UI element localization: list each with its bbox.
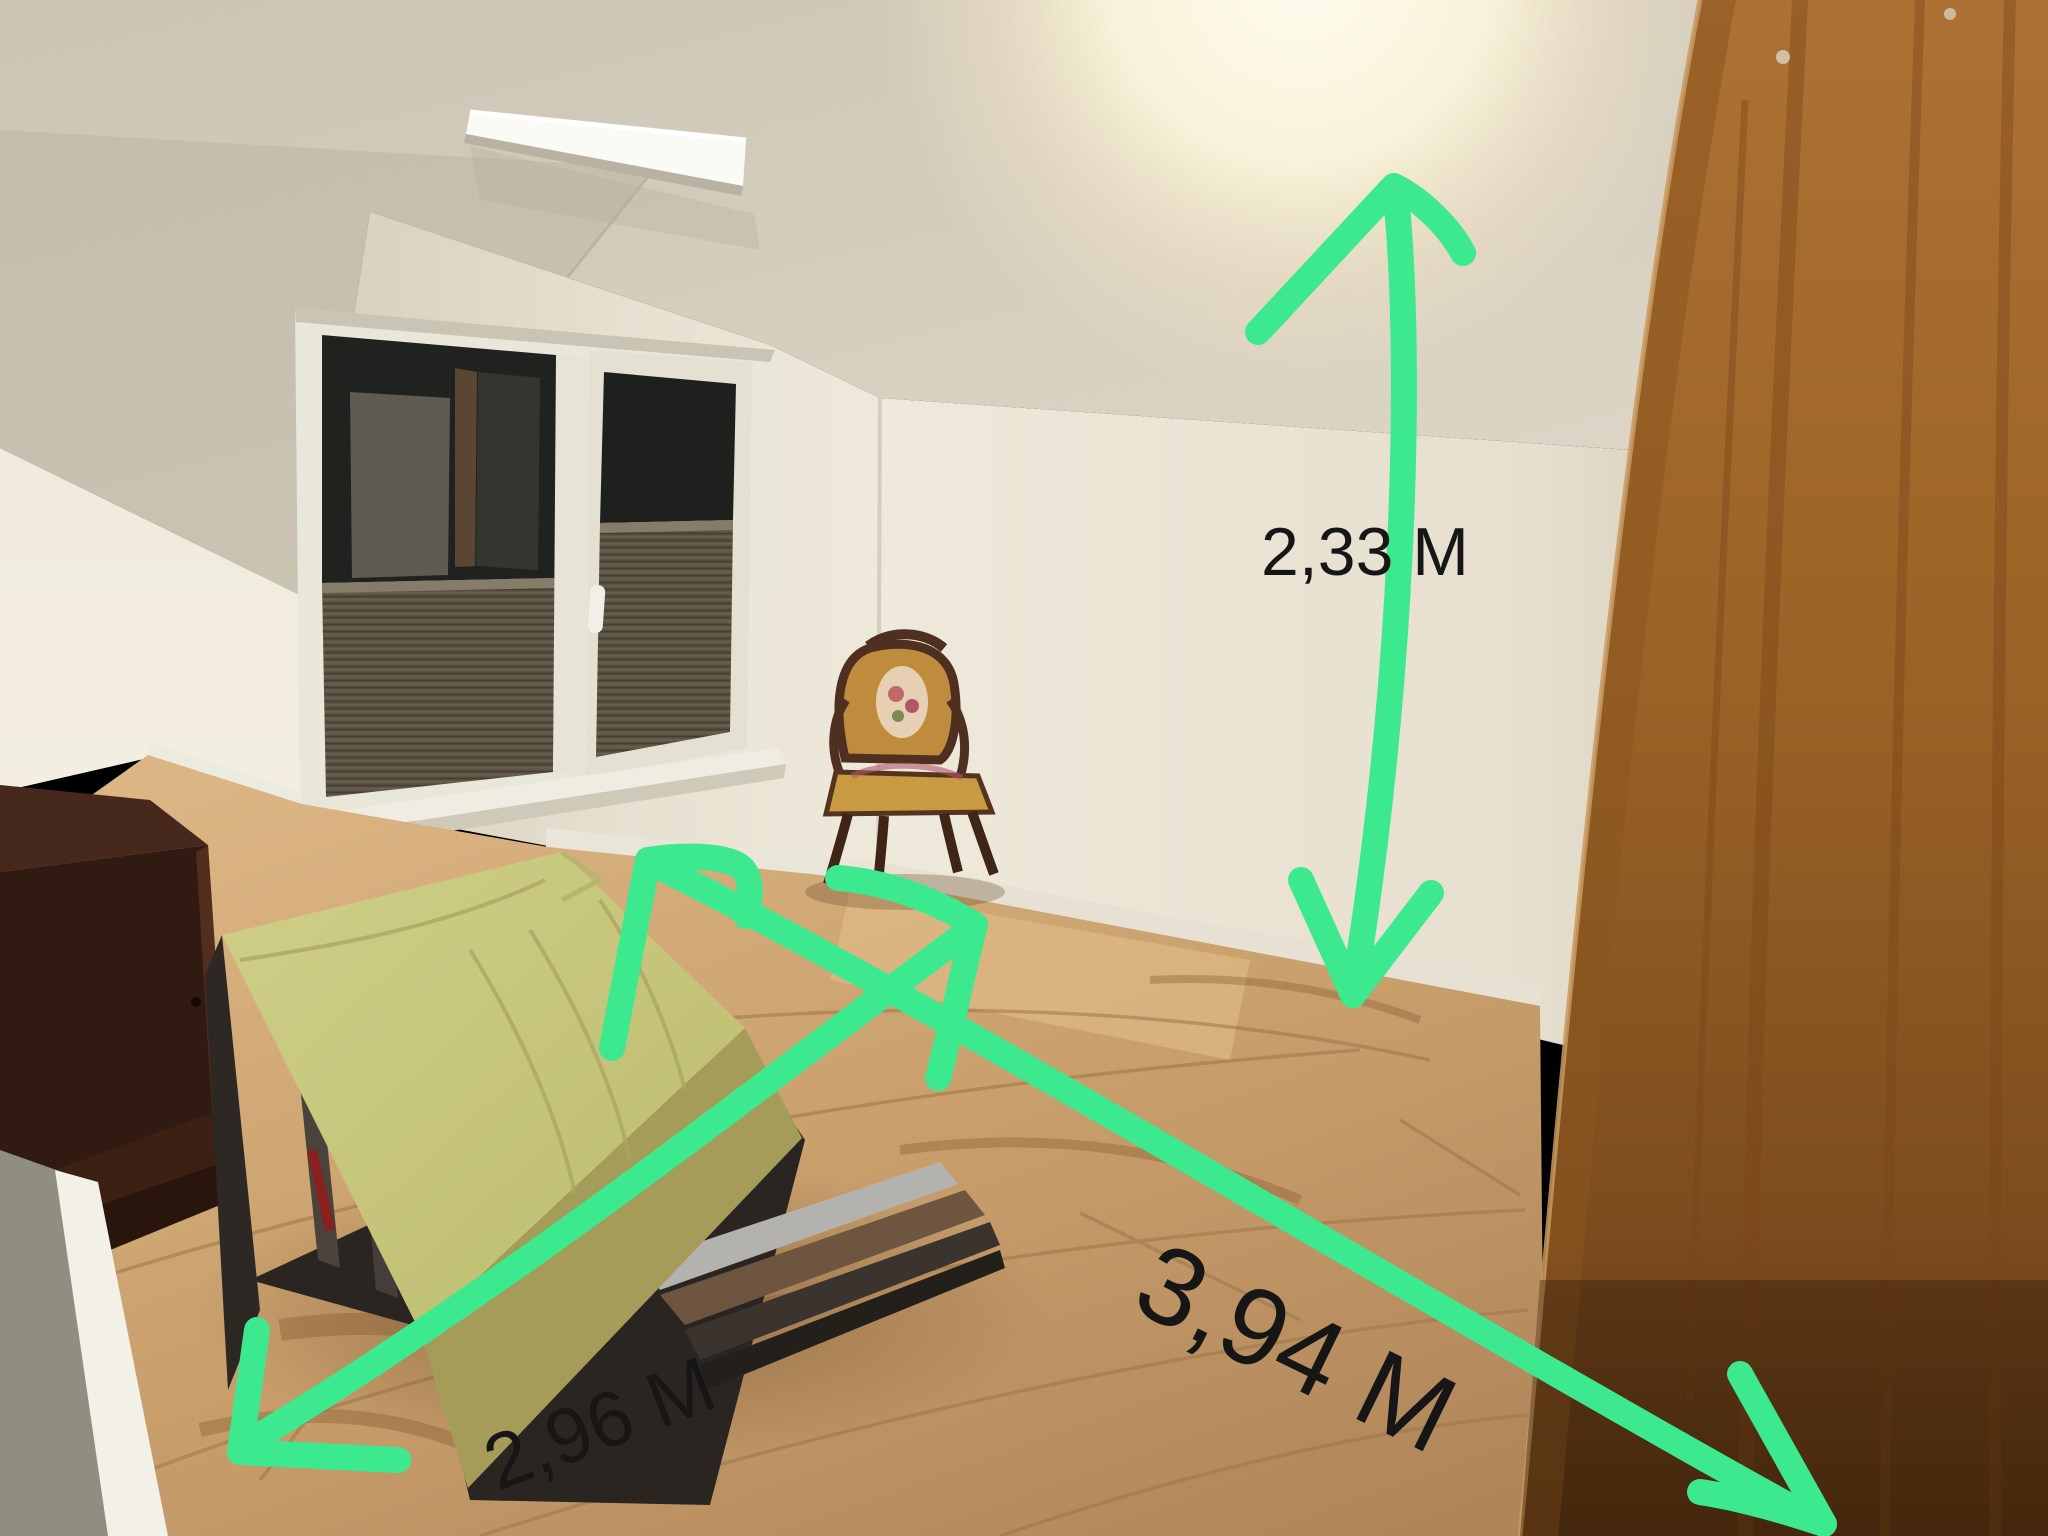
chair-medallion [876, 666, 928, 738]
wardrobe-screw [1776, 50, 1790, 64]
wardrobe-screw [1944, 8, 1956, 20]
glass-reflection [350, 392, 450, 578]
label-wall-height: 2,33 M [1261, 514, 1469, 590]
cabinet-keyhole [191, 997, 201, 1007]
room-photo: 2,33 M 2,96 M 3,94 M [0, 0, 2048, 1536]
chair-seat [826, 772, 992, 814]
window [288, 308, 786, 856]
window-mullion [553, 355, 590, 776]
window-blind-right [596, 520, 733, 757]
window-glass-right [600, 372, 736, 523]
window-blind-left [322, 578, 556, 797]
